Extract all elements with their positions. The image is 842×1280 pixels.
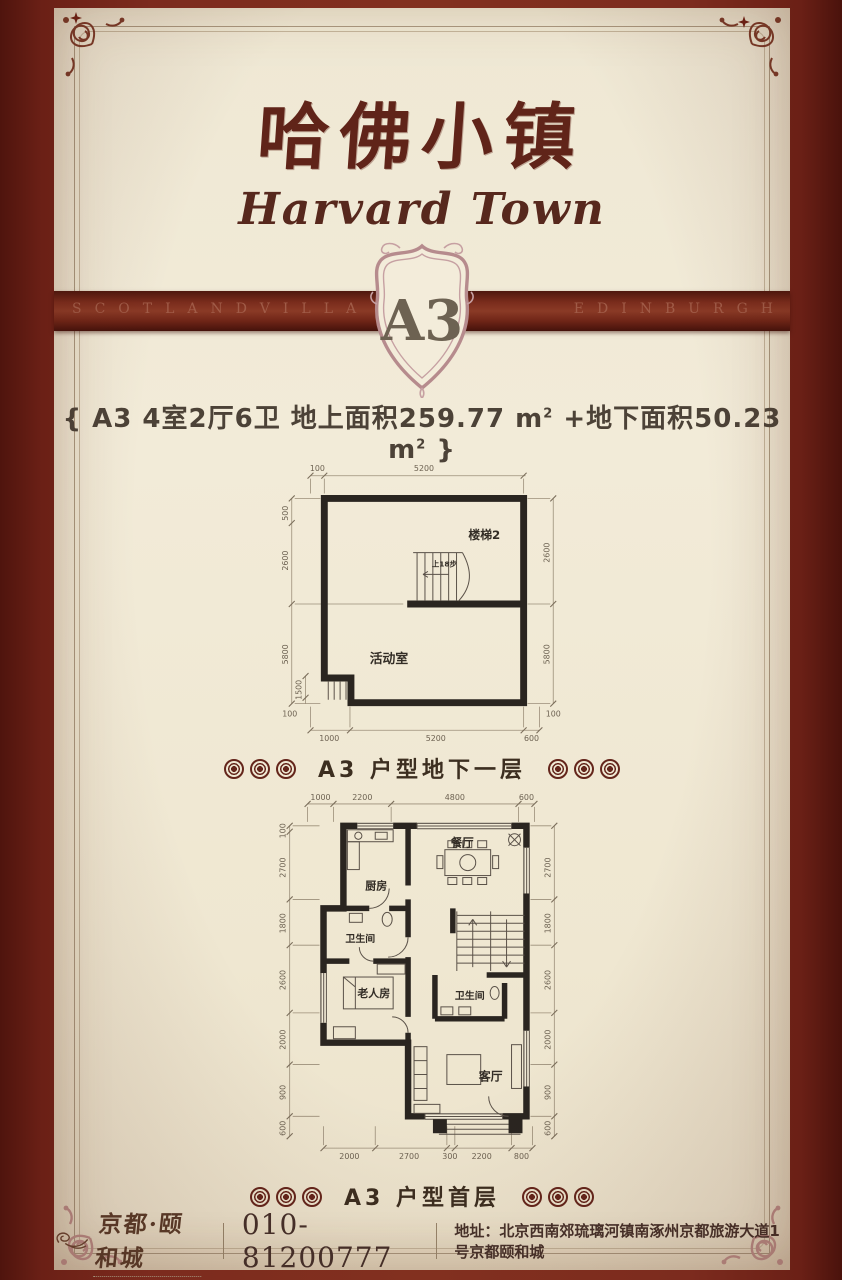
footer-bar: 京都·颐和城 010-81200777 地址：北京西南郊琉璃河镇南涿州京都旅游大… (54, 1216, 790, 1266)
rosette-icon (276, 759, 296, 779)
rosette-icon (600, 759, 620, 779)
dim-label: 1800 (543, 913, 552, 933)
dim-label: 1000 (310, 793, 330, 802)
room-label-bath1: 卫生间 (345, 932, 375, 945)
dim-label: 2200 (352, 793, 372, 802)
rosette-icon (250, 1187, 270, 1207)
address-text: 地址：北京西南郊琉璃河镇南涿州京都旅游大道1号京都颐和城 (454, 1220, 790, 1262)
footer-divider (436, 1223, 437, 1259)
room-label-staircase: 楼梯2 (468, 528, 500, 542)
rosette-icon (276, 1187, 296, 1207)
room-label-activity: 活动室 (370, 651, 409, 667)
basement-caption-row: A3 户型地下一层 (54, 752, 790, 784)
room-label-dining: 餐厅 (450, 836, 474, 850)
band-text-left: SCOTLANDVILLA (72, 301, 369, 317)
corner-flourish-icon (62, 14, 126, 78)
dim-label: 2000 (279, 1030, 288, 1050)
dim-label: 100 (279, 823, 288, 838)
dim-label: 5200 (414, 464, 434, 473)
dim-label: 900 (543, 1085, 552, 1100)
dim-label: 2200 (472, 1152, 492, 1161)
dim-label: 2700 (399, 1152, 419, 1161)
phone-number: 010-81200777 (242, 1208, 418, 1274)
rosette-icon (302, 1187, 322, 1207)
badge-label: A3 (380, 288, 463, 354)
room-label-elder: 老人房 (356, 986, 390, 1000)
dim-label: 4800 (445, 793, 465, 802)
dim-label: 2000 (543, 1030, 552, 1050)
room-label-living: 客厅 (478, 1069, 503, 1083)
brand-name: 京都·颐和城 (93, 1205, 209, 1277)
dim-label: 1500 (295, 680, 304, 700)
room-label-kitchen: 厨房 (365, 878, 387, 892)
dim-label: 100 (546, 709, 561, 718)
address-label: 地址： (454, 1222, 499, 1240)
first-floor-plan: 1000 2200 4800 600 100 2700 1800 2600 20… (254, 788, 590, 1180)
rosette-icon (574, 759, 594, 779)
room-label-stair-note: 上18步 (432, 559, 458, 568)
dim-label: 600 (519, 793, 534, 802)
corner-flourish-icon (718, 14, 782, 78)
rosette-icon (250, 759, 270, 779)
dim-label: 800 (514, 1152, 529, 1161)
rosette-icon (548, 1187, 568, 1207)
dim-label: 2600 (279, 970, 288, 990)
rosette-icon (522, 1187, 542, 1207)
unit-shield-badge: A3 (360, 240, 484, 398)
dim-label: 2700 (279, 857, 288, 877)
dim-label: 600 (543, 1121, 552, 1136)
dim-label: 1800 (279, 913, 288, 933)
dim-label: 100 (310, 464, 325, 473)
dim-label: 900 (279, 1085, 288, 1100)
rosette-icon (548, 759, 568, 779)
footer-divider (223, 1223, 224, 1259)
dim-label: 5200 (426, 734, 446, 743)
brand-flourish-icon (54, 1227, 91, 1255)
band-text-right: EDINBURGH (574, 301, 786, 317)
dim-label: 2600 (543, 970, 552, 990)
dim-label: 1000 (319, 734, 339, 743)
dim-label: 5800 (281, 644, 290, 664)
dim-label: 5800 (542, 644, 551, 664)
dim-label: 2700 (543, 857, 552, 877)
rosette-icon (224, 759, 244, 779)
dim-label: 100 (282, 709, 297, 718)
project-title-english: Harvard Town (54, 184, 790, 235)
project-title-chinese: 哈佛小镇 (50, 78, 793, 183)
room-label-bath2: 卫生间 (455, 989, 485, 1002)
dim-label: 2000 (339, 1152, 359, 1161)
dim-label: 600 (524, 734, 539, 743)
dim-label: 300 (442, 1152, 457, 1161)
brand-logo: 京都·颐和城 (54, 1205, 205, 1277)
dim-label: 2600 (281, 551, 290, 571)
basement-floor-plan: 100 5200 500 2600 5800 1500 100 2600 580… (254, 454, 590, 756)
flyer-card: 哈佛小镇 Harvard Town SCOTLANDVILLA EDINBURG… (54, 8, 790, 1270)
dim-label: 2600 (542, 543, 551, 563)
dim-label: 600 (279, 1121, 288, 1136)
rosette-icon (574, 1187, 594, 1207)
dim-label: 500 (281, 506, 290, 521)
basement-caption: A3 户型地下一层 (318, 758, 526, 783)
